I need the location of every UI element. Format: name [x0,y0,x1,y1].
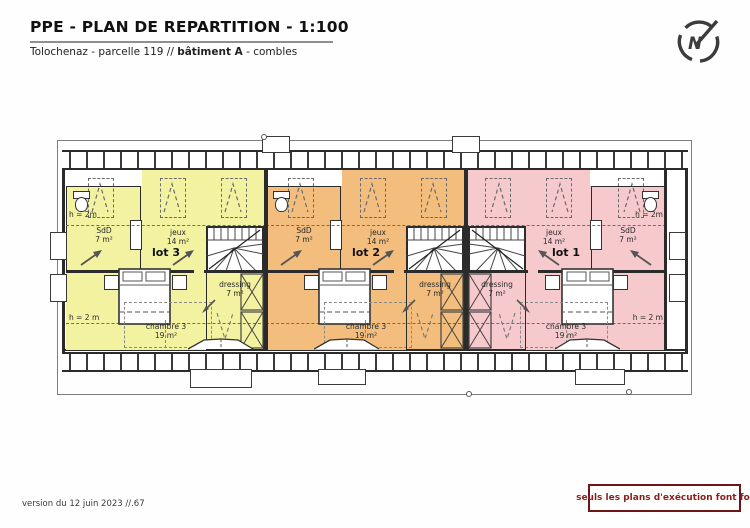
direction-arrow-icon [170,248,196,268]
dormer-window-icon [188,338,254,350]
dormer-window-icon [554,338,620,350]
direction-arrow-icon [278,248,304,268]
window-east-2 [669,274,686,302]
survey-point-3 [626,389,632,395]
floor-plan: SdD7 m² h = 2m h = 2 m jeux14 m² lot 3 [0,0,750,528]
unit-lot-1: SdD7 m² h = 2m h = 2 m jeux14 m² lot 1 [466,170,666,350]
room-label-jeux: jeux14 m² [150,228,206,246]
roof-eave-top [62,150,688,170]
skylight-icon [360,178,386,218]
chimney-top-2 [452,136,480,153]
skylight-icon [160,178,186,218]
dressing-arrow-icon [514,297,532,315]
skylight-icon [221,178,247,218]
room-label-dressing: dressing7 m² [470,280,524,298]
dormer-bump-lot1 [575,369,625,385]
skylight-icon [546,178,572,218]
nightstand-icon [372,275,387,290]
dormer-bump-lot3 [190,369,252,388]
plan-sheet: PPE - PLAN DE REPARTITION - 1:100 Toloch… [0,0,750,528]
direction-arrow-icon [628,248,654,268]
skylight-icon [485,178,511,218]
party-wall-lot2-lot1 [464,170,468,350]
staircase-icon [468,226,526,272]
survey-point-1 [261,134,267,140]
nightstand-icon [104,275,119,290]
nightstand-icon [304,275,319,290]
dormer-window-icon [314,338,380,350]
survey-point-2 [466,391,472,397]
window-east-1 [669,232,686,260]
room-label-sdd: SdD7 m² [278,226,330,244]
toilet-bowl-icon [275,197,288,212]
execution-notice-box: seuls les plans d'exécution font foi [588,484,741,512]
room-label-jeux: jeux14 m² [526,228,582,246]
dressing-arrow-icon [400,297,418,315]
staircase-icon [406,226,464,272]
end-wall-lot1 [664,170,667,350]
unit-lot-3: SdD7 m² h = 2m h = 2 m jeux14 m² lot 3 [66,170,266,350]
party-wall-lot3-lot2 [264,170,268,350]
height-label-top: h = 2m [69,210,97,219]
nightstand-icon [613,275,628,290]
version-stamp: version du 12 juin 2023 //.67 [22,499,145,509]
direction-arrow-icon [536,248,562,268]
room-label-jeux: jeux14 m² [350,228,406,246]
room-label-dressing: dressing7 m² [208,280,262,298]
room-label-dressing: dressing7 m² [408,280,462,298]
room-label-sdd: SdD7 m² [78,226,130,244]
window-west-1 [50,232,67,260]
unit-lot-2: SdD7 m² jeux14 m² lot 2 [266,170,466,350]
direction-arrow-icon [370,248,396,268]
execution-notice-text: seuls les plans d'exécution font foi [576,493,750,503]
room-label-sdd: SdD7 m² [602,226,654,244]
nightstand-icon [545,275,560,290]
skylight-icon [421,178,447,218]
height-label-top: h = 2m [635,210,663,219]
staircase-icon [206,226,264,272]
dormer-bump-lot2 [318,369,366,385]
window-west-2 [50,274,67,302]
height-label-bottom: h = 2 m [69,313,99,322]
nightstand-icon [172,275,187,290]
dressing-arrow-icon [200,297,218,315]
direction-arrow-icon [78,248,104,268]
height-label-bottom: h = 2 m [633,313,663,322]
